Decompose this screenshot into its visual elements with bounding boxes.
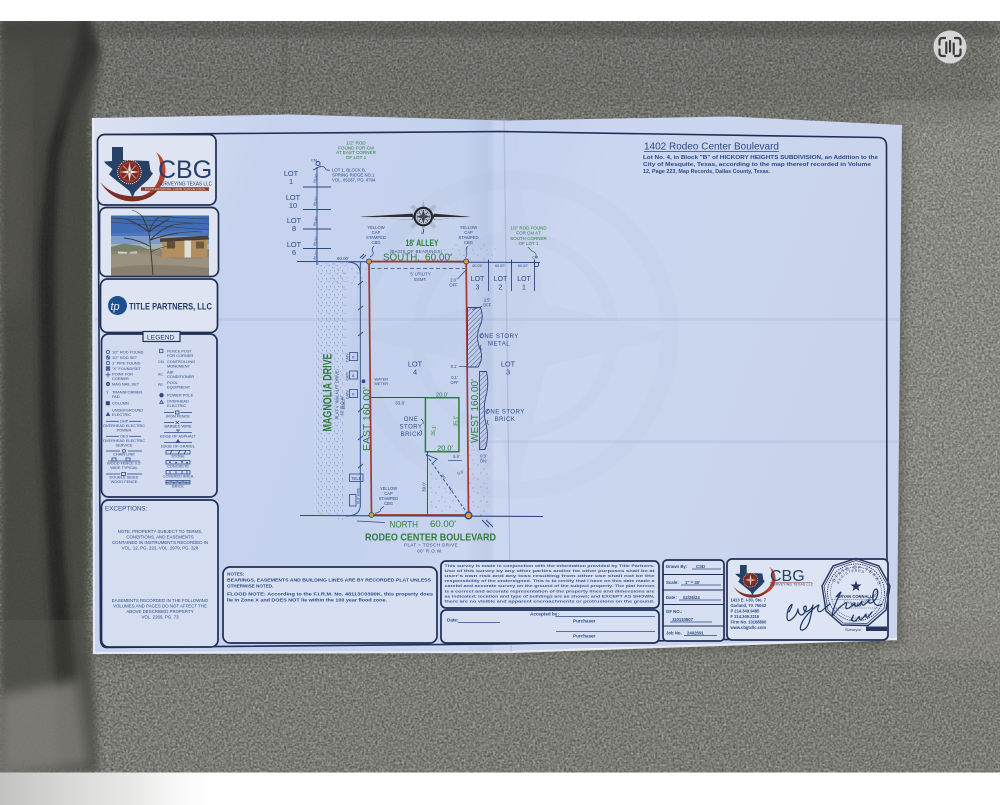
svg-text:60.00': 60.00'	[430, 519, 456, 529]
svg-text:LOT: LOT	[517, 276, 531, 283]
svg-text:CATV: CATV	[346, 371, 350, 381]
svg-text:COLUMN: COLUMN	[112, 401, 129, 406]
svg-text:60.00': 60.00'	[495, 264, 506, 268]
svg-text:POWER: POWER	[117, 428, 132, 433]
svg-text:CM: CM	[311, 159, 317, 163]
svg-text:EASEMENTS RECORDED IN THE FOLL: EASEMENTS RECORDED IN THE FOLLOWING	[112, 598, 209, 603]
svg-text:Purchaser: Purchaser	[573, 619, 596, 624]
svg-text:"X" FOUND/SET: "X" FOUND/SET	[112, 366, 142, 371]
svg-text:10: 10	[289, 201, 297, 210]
svg-text:PLAT = TOSCH DRIVE: PLAT = TOSCH DRIVE	[404, 543, 458, 548]
svg-text:18' ALLEY: 18' ALLEY	[406, 238, 439, 248]
svg-text:Surveyor: Surveyor	[845, 627, 862, 632]
svg-text:60.00': 60.00'	[518, 264, 529, 268]
svg-text:OFF: OFF	[483, 303, 492, 308]
svg-text:BARBED WIRE: BARBED WIRE	[164, 424, 192, 429]
svg-text:3: 3	[506, 368, 510, 377]
svg-text:ELECTRIC: ELECTRIC	[167, 403, 186, 408]
svg-text:FOR CORNER: FOR CORNER	[167, 353, 193, 358]
svg-text:EAST 160.00': EAST 160.00'	[361, 387, 373, 451]
svg-text:ONE STORY: ONE STORY	[485, 410, 525, 416]
svg-text:110110507: 110110507	[672, 617, 694, 622]
svg-text:METER: METER	[375, 381, 389, 386]
svg-text:TELE: TELE	[351, 476, 362, 481]
svg-text:1/2" ROD FOUND: 1/2" ROD FOUND	[112, 350, 144, 355]
svg-text:MONUMENT: MONUMENT	[167, 364, 191, 369]
svg-text:LOT: LOT	[471, 276, 485, 283]
svg-text:33.8': 33.8'	[395, 401, 405, 406]
svg-text:39.0': 39.0'	[422, 482, 427, 492]
svg-text:CBG: CBG	[371, 240, 380, 245]
svg-text:SURVEYING TEXAS LLC: SURVEYING TEXAS LLC	[158, 182, 212, 188]
svg-text:0.1': 0.1'	[451, 364, 458, 369]
svg-text:CONDITIONER: CONDITIONER	[167, 374, 194, 379]
svg-text:6: 6	[292, 248, 296, 257]
svg-text:NORTH: NORTH	[390, 520, 419, 530]
svg-text:EDGE OF ASPHALT: EDGE OF ASPHALT	[160, 434, 196, 439]
svg-text:Firm No. 10168800: Firm No. 10168800	[731, 620, 768, 625]
svg-text:NOTE: PROPERTY SUBJECT TO TERM: NOTE: PROPERTY SUBJECT TO TERMS,	[118, 529, 203, 534]
svg-text:5.9': 5.9'	[453, 454, 460, 459]
svg-text:1" PIPE FOUND: 1" PIPE FOUND	[112, 361, 141, 366]
svg-text:OF LOT 1: OF LOT 1	[519, 241, 539, 246]
svg-text:CONDITIONS, AND EASEMENTS: CONDITIONS, AND EASEMENTS	[126, 535, 193, 540]
svg-text:OFF: OFF	[449, 283, 458, 288]
svg-text:Scale:: Scale:	[666, 580, 679, 585]
svg-text:BRICK: BRICK	[495, 417, 516, 423]
svg-text:tp: tp	[111, 301, 120, 313]
svg-text:Job No.: Job No.	[666, 631, 682, 636]
svg-text:R: R	[352, 393, 355, 397]
svg-text:PE: PE	[158, 383, 163, 387]
svg-text:60' R.O.W.: 60' R.O.W.	[417, 548, 443, 553]
svg-text:ELECTRIC: ELECTRIC	[112, 412, 131, 417]
svg-text:1" = 30': 1" = 30'	[685, 580, 700, 585]
svg-text:lie in Zone X and DOES NOT lie: lie in Zone X and DOES NOT lie within th…	[227, 598, 387, 603]
svg-text:CORNER: CORNER	[112, 376, 129, 381]
svg-text:CBG: CBG	[158, 156, 212, 184]
svg-text:VOL. 12, PG. 223, VOL. 2979, P: VOL. 12, PG. 223, VOL. 2979, PG. 328	[122, 546, 199, 551]
svg-text:SURVEYING TEXAS LLC: SURVEYING TEXAS LLC	[771, 583, 814, 587]
svg-text:City of Mesquite, Texas, accor: City of Mesquite, Texas, according to th…	[643, 162, 871, 168]
svg-text:WEST 160.00': WEST 160.00'	[469, 379, 481, 443]
svg-text:NOTES:: NOTES:	[227, 572, 245, 577]
svg-text:F 214.349.2216: F 214.349.2216	[731, 614, 760, 619]
svg-text:OTHERWISE NOTED.: OTHERWISE NOTED.	[227, 584, 273, 589]
svg-text:OF LOT 1: OF LOT 1	[346, 155, 367, 160]
svg-text:ONE STORY: ONE STORY	[479, 334, 519, 340]
svg-text:PROFESSIONAL LAND SURVEYORS: PROFESSIONAL LAND SURVEYORS	[145, 188, 205, 191]
svg-text:FLOOD NOTE: According to the F: FLOOD NOTE: According to the F.I.R.M. No…	[227, 592, 434, 597]
svg-text:Garland, TX 75043: Garland, TX 75043	[731, 603, 767, 608]
svg-text:Purchaser: Purchaser	[573, 634, 596, 639]
svg-text:CATV: CATV	[346, 389, 350, 399]
svg-text:VOLUMES AND PAGES DO NOT AFFEC: VOLUMES AND PAGES DO NOT AFFECT THE	[113, 604, 207, 609]
svg-text:Date:: Date:	[666, 595, 677, 600]
svg-text:WOOD FENCE: WOOD FENCE	[111, 479, 138, 484]
svg-text:VOL. 2269, PG. 73: VOL. 2269, PG. 73	[141, 615, 179, 620]
svg-text:there are no visible and appar: there are no visible and apparent encroa…	[445, 599, 655, 604]
svg-text:EQUIPMENT: EQUIPMENT	[167, 385, 191, 390]
svg-text:CM: CM	[158, 360, 164, 364]
svg-text:Drawn By:: Drawn By:	[666, 564, 688, 569]
svg-text:EXCEPTIONS:: EXCEPTIONS:	[105, 506, 148, 513]
svg-text:GUY WIRE: GUY WIRE	[357, 488, 361, 504]
svg-text:CATV: CATV	[346, 352, 350, 362]
svg-text:CBG: CBG	[384, 501, 393, 506]
svg-text:LOT: LOT	[494, 276, 508, 283]
svg-text:METAL: METAL	[488, 342, 510, 348]
svg-text:60.00': 60.00'	[337, 256, 349, 261]
svg-text:20.0': 20.0'	[436, 392, 448, 398]
svg-text:2: 2	[499, 285, 503, 292]
svg-text:Date:: Date:	[447, 618, 459, 623]
svg-text:EDGE OF GRAVEL: EDGE OF GRAVEL	[161, 444, 196, 449]
svg-text:LEGEND: LEGEND	[147, 335, 175, 342]
svg-text:1: 1	[289, 177, 293, 186]
svg-text:CM: CM	[532, 256, 538, 260]
svg-text:CSD: CSD	[696, 564, 705, 569]
svg-text:20.0': 20.0'	[437, 444, 453, 453]
svg-text:02/26/24: 02/26/24	[683, 595, 700, 600]
svg-text:4: 4	[413, 368, 417, 377]
svg-text:GF NO.:: GF NO.:	[666, 609, 683, 614]
svg-text:BRICK: BRICK	[401, 432, 422, 438]
svg-text:5' UTILITY: 5' UTILITY	[410, 272, 431, 277]
svg-text:ABOVE DESCRIBED PROPERTY: ABOVE DESCRIBED PROPERTY	[126, 609, 193, 614]
svg-text:M: M	[421, 231, 424, 235]
svg-text:www.cbgtxllc.com: www.cbgtxllc.com	[730, 625, 767, 630]
svg-text:1413 E. I-30, Ste. 7: 1413 E. I-30, Ste. 7	[731, 598, 767, 603]
svg-text:BEARINGS, EASEMENTS AND BUILDI: BEARINGS, EASEMENTS AND BUILDING LINES A…	[227, 578, 431, 583]
svg-text:R: R	[352, 356, 355, 360]
svg-text:VOL. 85187, PG. 4704: VOL. 85187, PG. 4704	[332, 178, 376, 183]
svg-text:2402691: 2402691	[687, 631, 704, 636]
svg-text:STORY: STORY	[400, 425, 423, 431]
svg-text:P 214.349.9485: P 214.349.9485	[731, 609, 761, 614]
svg-text:1402 Rodeo Center Boulevard: 1402 Rodeo Center Boulevard	[644, 141, 779, 153]
svg-text:ESMT.: ESMT.	[414, 277, 427, 282]
svg-text:POWER POLE: POWER POLE	[167, 393, 194, 398]
svg-text:Accepted by:: Accepted by:	[530, 612, 559, 617]
svg-text:1/2" ROD SET: 1/2" ROD SET	[112, 355, 138, 360]
svg-text:OFF: OFF	[450, 380, 459, 385]
svg-text:TITLE PARTNERS, LLC: TITLE PARTNERS, LLC	[129, 302, 212, 312]
svg-text:CONTAINED IN INSTRUMENTS RECOR: CONTAINED IN INSTRUMENTS RECORDED IN	[112, 540, 208, 545]
svg-text:WIDE TYPICAL: WIDE TYPICAL	[110, 465, 138, 470]
svg-text:BRYAN CONNALLY: BRYAN CONNALLY	[837, 594, 875, 599]
svg-text:AC: AC	[158, 373, 163, 377]
svg-text:35.1': 35.1'	[454, 416, 460, 427]
svg-text:Lot No. 4, in Block "B" of HIC: Lot No. 4, in Block "B" of HICKORY HEIGH…	[643, 155, 878, 161]
svg-text:8: 8	[292, 224, 296, 233]
svg-text:12, Page 223, Map Records, Dal: 12, Page 223, Map Records, Dallas County…	[643, 169, 771, 175]
svg-text:MAG NAIL SET: MAG NAIL SET	[112, 382, 140, 387]
svg-text:60.00': 60.00'	[472, 264, 483, 268]
svg-text:SERVICE: SERVICE	[115, 443, 132, 448]
svg-text:PAD: PAD	[112, 394, 120, 399]
svg-text:3: 3	[476, 285, 480, 292]
svg-text:ONE: ONE	[404, 417, 419, 423]
svg-text:1: 1	[522, 285, 526, 292]
